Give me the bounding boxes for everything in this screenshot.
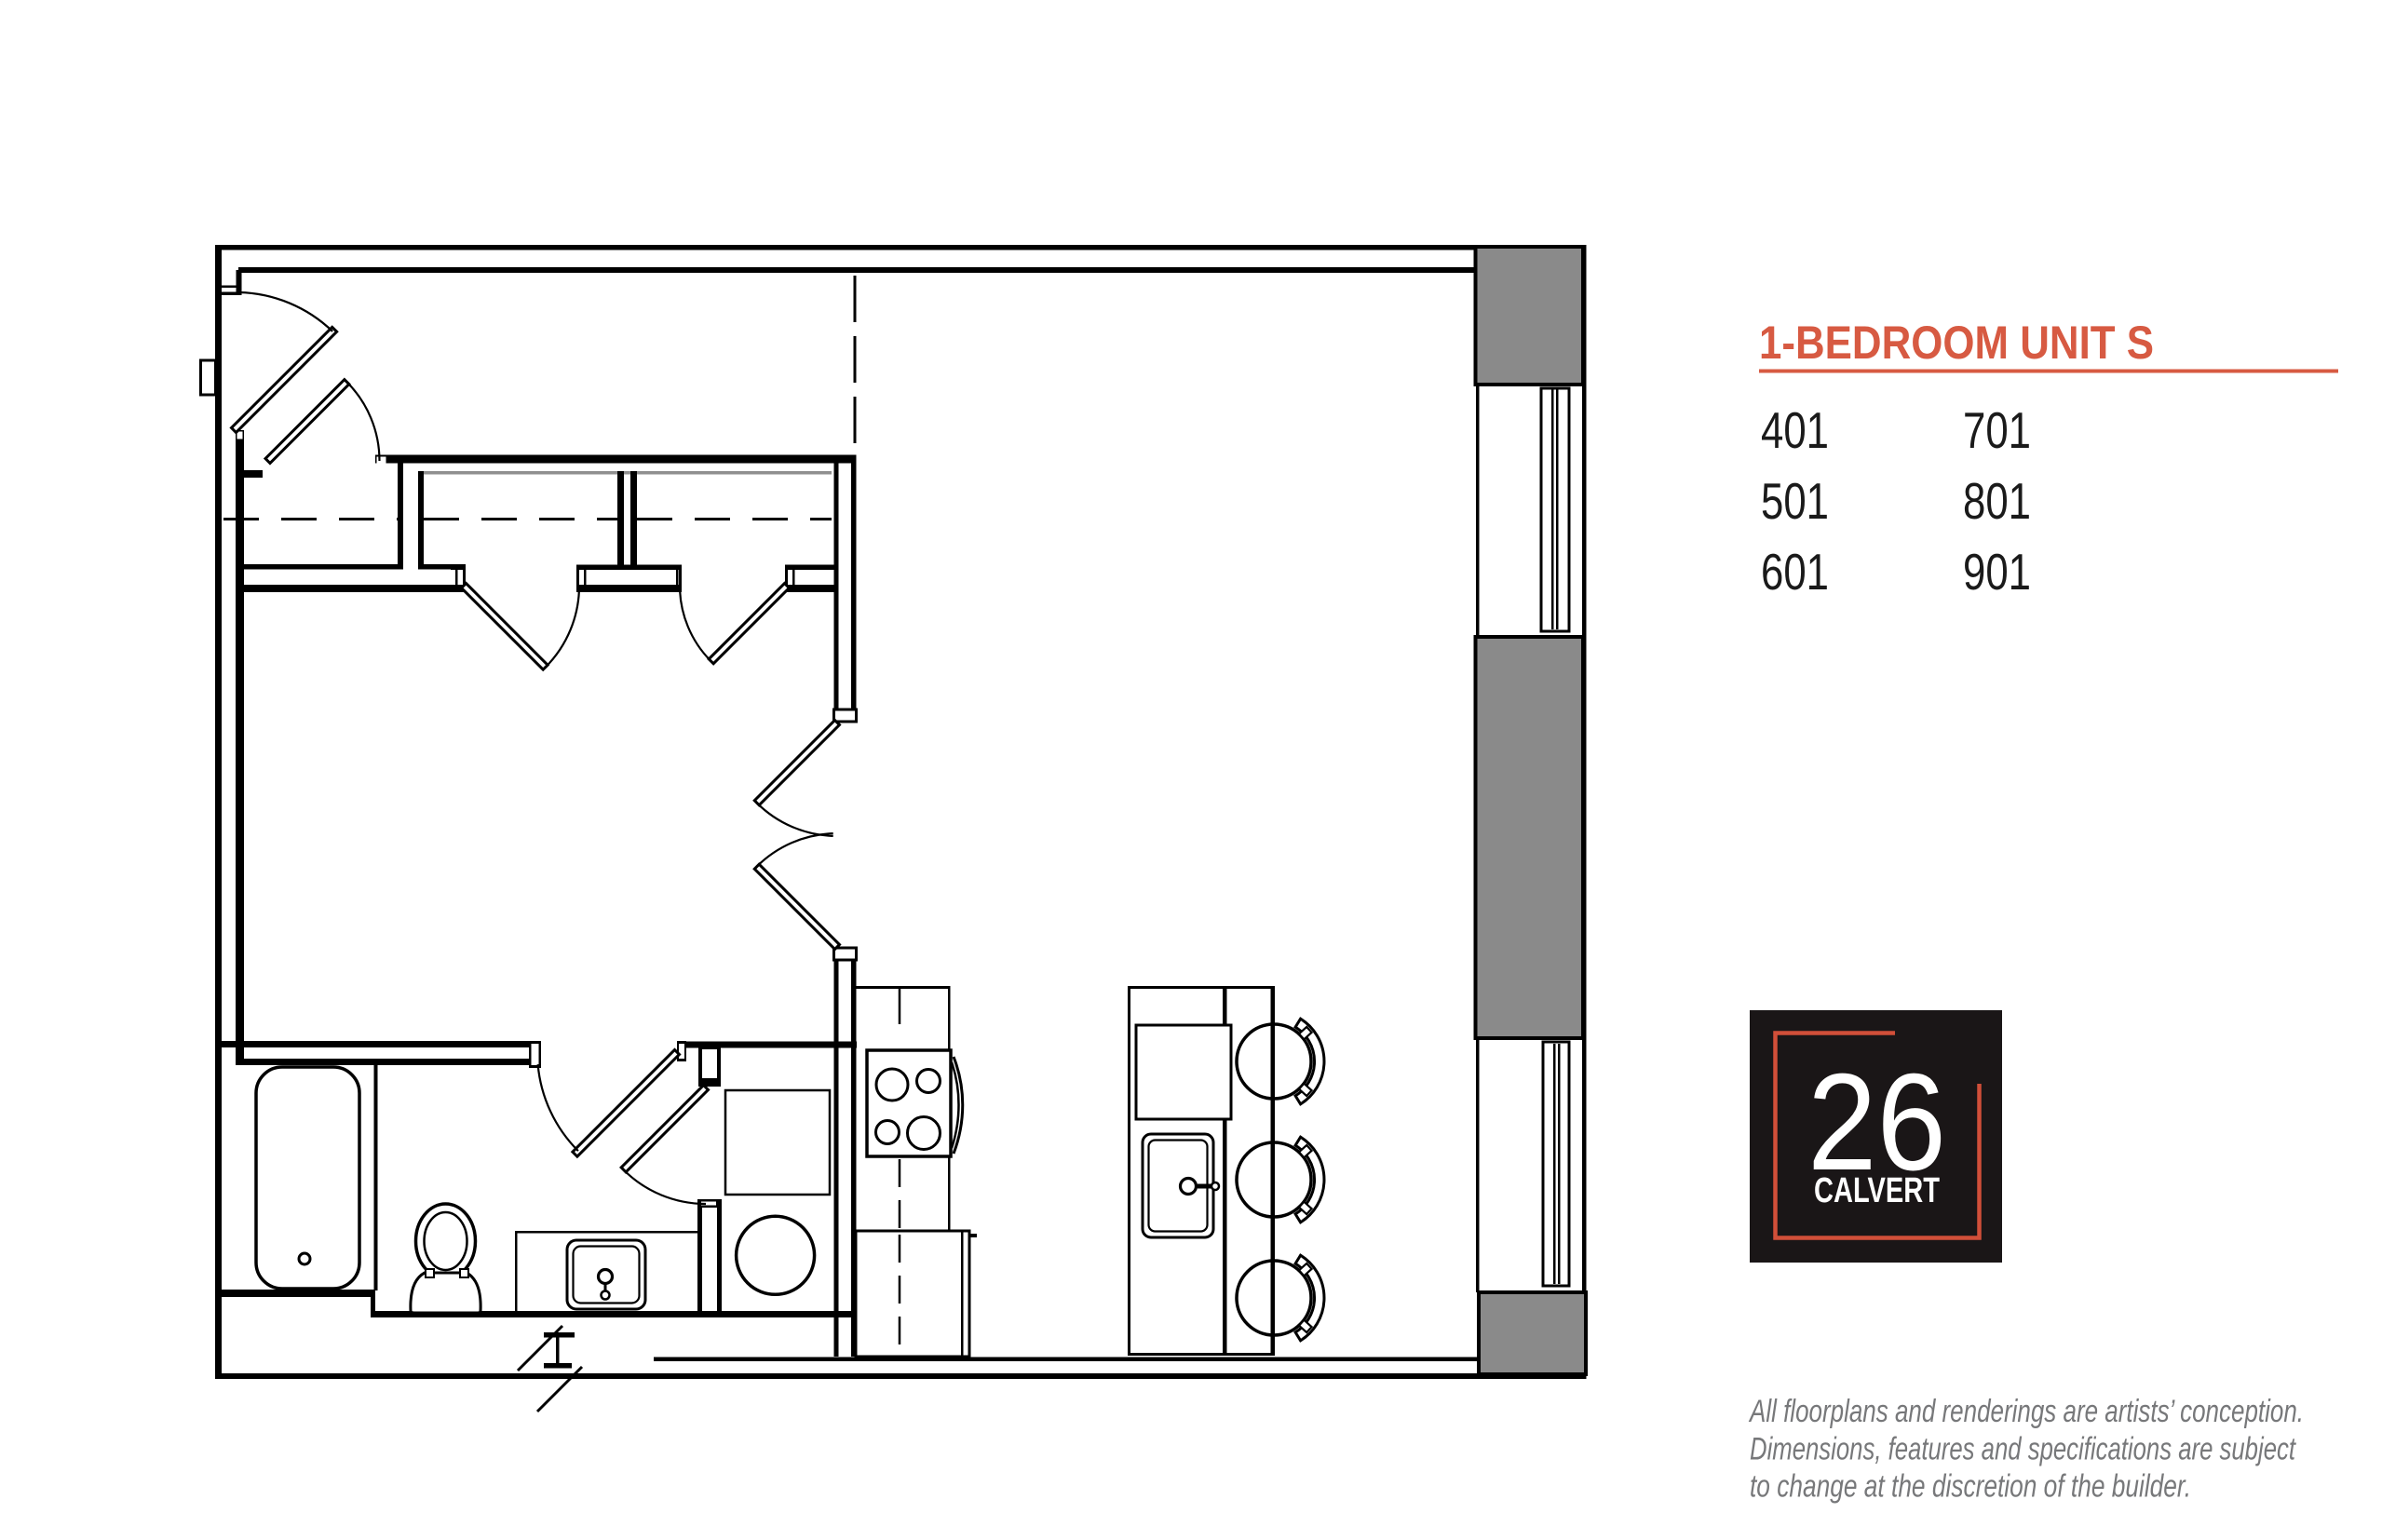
svg-text:501: 501: [1761, 472, 1829, 530]
svg-text:1-BEDROOM UNIT S: 1-BEDROOM UNIT S: [1759, 317, 2154, 369]
svg-text:Dimensions, features and speci: Dimensions, features and specifications …: [1750, 1432, 2296, 1467]
svg-text:All floorplans and renderings: All floorplans and renderings are artist…: [1748, 1394, 2304, 1429]
svg-text:to change at the discretion of: to change at the discretion of the build…: [1750, 1469, 2191, 1505]
svg-text:901: 901: [1963, 543, 2031, 601]
svg-text:801: 801: [1963, 472, 2031, 530]
svg-text:401: 401: [1761, 401, 1829, 459]
svg-text:701: 701: [1963, 401, 2031, 459]
svg-text:CALVERT: CALVERT: [1814, 1171, 1940, 1210]
svg-text:601: 601: [1761, 543, 1829, 601]
